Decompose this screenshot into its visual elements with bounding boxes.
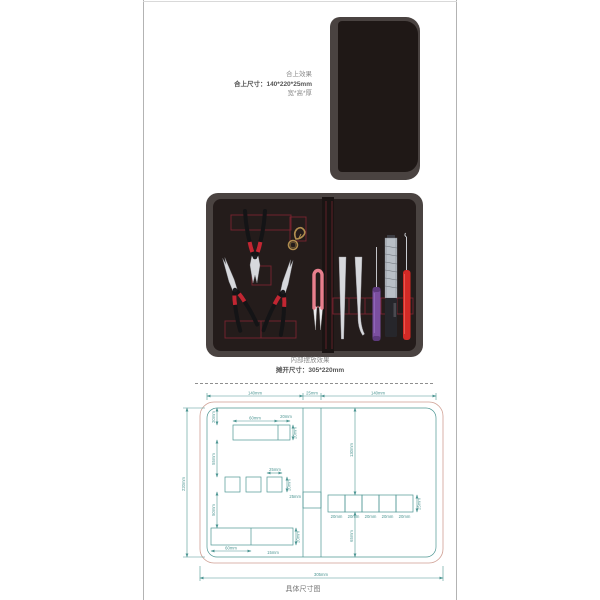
product-image-canvas: 合上效果 合上尺寸：140*220*25mm 宽*高*厚 [0, 0, 600, 600]
dim-label-lp-v-top: 20mm [211, 411, 216, 423]
closed-unit-label: 宽*高*厚 [170, 89, 312, 99]
dim-label-width: 305mm [314, 572, 328, 577]
pocket-cell-2 [345, 495, 362, 512]
dashed-separator [195, 383, 433, 384]
left-dimension: 220mm [181, 408, 205, 557]
dim-label-rp-cell-4: 20mm [382, 514, 394, 519]
dim-label-lp-top-h: 20mm [293, 427, 298, 439]
dim-label-lp-bot-off: 15mm [267, 550, 279, 555]
pocket-bottom-left [211, 528, 293, 545]
blade-slider [394, 303, 397, 317]
dim-label-top-right: 140mm [371, 391, 385, 396]
dim-label-rp-cell-5: 20mm [399, 514, 411, 519]
dim-label-lp-v-mid: 55mm [211, 453, 216, 465]
closed-effect-label: 合上效果 [170, 70, 312, 80]
drawing-title: 具体尺寸图 [228, 584, 378, 594]
pocket-cell-3 [362, 495, 379, 512]
inner-layout-label: 内部摆放效果 [235, 356, 385, 366]
bottom-dimension: 305mm [200, 566, 443, 581]
dim-label-rp-v-bot: 65mm [349, 530, 354, 542]
closed-case [330, 17, 420, 180]
pocket-cell-1 [328, 495, 345, 512]
dim-label-rp-cell-1: 20mm [331, 514, 343, 519]
dim-label-top-left: 140mm [248, 391, 262, 396]
open-size-caption: 内部摆放效果 摊开尺寸：305*220mm [235, 356, 385, 375]
case-outline-outer [200, 402, 443, 563]
closed-size-caption: 合上效果 合上尺寸：140*220*25mm 宽*高*厚 [170, 70, 312, 99]
pocket-top-left [233, 425, 290, 440]
dim-label-lp-top-b: 20mm [280, 414, 292, 419]
dim-label-lp-top-a: 60mm [249, 416, 261, 421]
left-panel-pockets: 60mm 20mm 20mm 20mm 55mm 50mm 25mm 20mm … [211, 408, 321, 555]
dim-label-rp-cell-3: 20mm [365, 514, 377, 519]
left-frame-line [143, 0, 144, 600]
dim-label-height: 220mm [181, 477, 186, 491]
pocket-cell-4 [379, 495, 396, 512]
closed-size-label: 合上尺寸：140*220*25mm [170, 80, 312, 90]
case-outline-inner [207, 408, 436, 557]
pocket-spine [303, 492, 321, 508]
dim-label-lp-bot-a: 60mm [225, 546, 237, 551]
dim-label-rp-v-top: 130mm [349, 443, 354, 457]
dim-label-rp-cell-h: 25mm [417, 498, 422, 510]
utility-knife [385, 235, 397, 337]
pocket-cell-5 [396, 495, 413, 512]
dim-label-lp-sq-h: 20mm [287, 479, 292, 491]
dim-label-lp-v-bot: 50mm [211, 504, 216, 516]
top-frame-line [143, 1, 457, 2]
dim-label-top-spine: 25mm [306, 391, 318, 396]
pocket-square-1 [225, 477, 240, 492]
top-dimension-chain: 140mm 25mm 140mm [207, 391, 436, 401]
dimension-drawing: 140mm 25mm 140mm 220mm 305mm 60mm 20mm [165, 388, 457, 594]
dim-label-lp-bot-h: 20mm [296, 531, 301, 543]
dim-label-spine-pocket: 25mm [289, 494, 301, 499]
dim-label-lp-sq-w: 25mm [269, 467, 281, 472]
closed-case-front-panel [338, 21, 418, 172]
open-size-label: 摊开尺寸：305*220mm [235, 366, 385, 376]
pocket-square-2 [246, 477, 261, 492]
right-panel-pockets: 130mm 20mm 20mm 20mm 20mm 20mm 25mm 65mm [328, 408, 422, 557]
dim-label-rp-cell-2: 20mm [348, 514, 360, 519]
pocket-square-3 [267, 477, 282, 492]
open-case [206, 193, 423, 357]
